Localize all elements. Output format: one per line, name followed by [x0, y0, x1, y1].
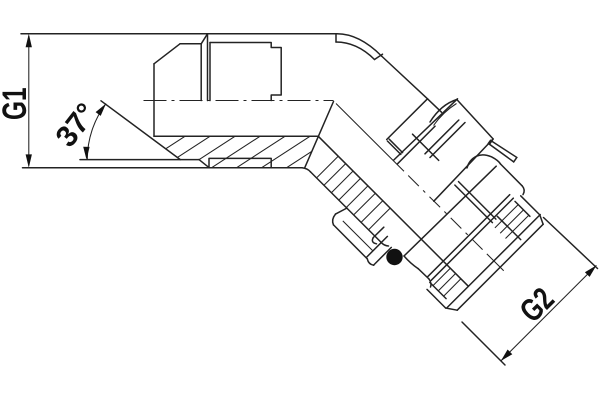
svg-text:G1: G1: [0, 87, 34, 120]
